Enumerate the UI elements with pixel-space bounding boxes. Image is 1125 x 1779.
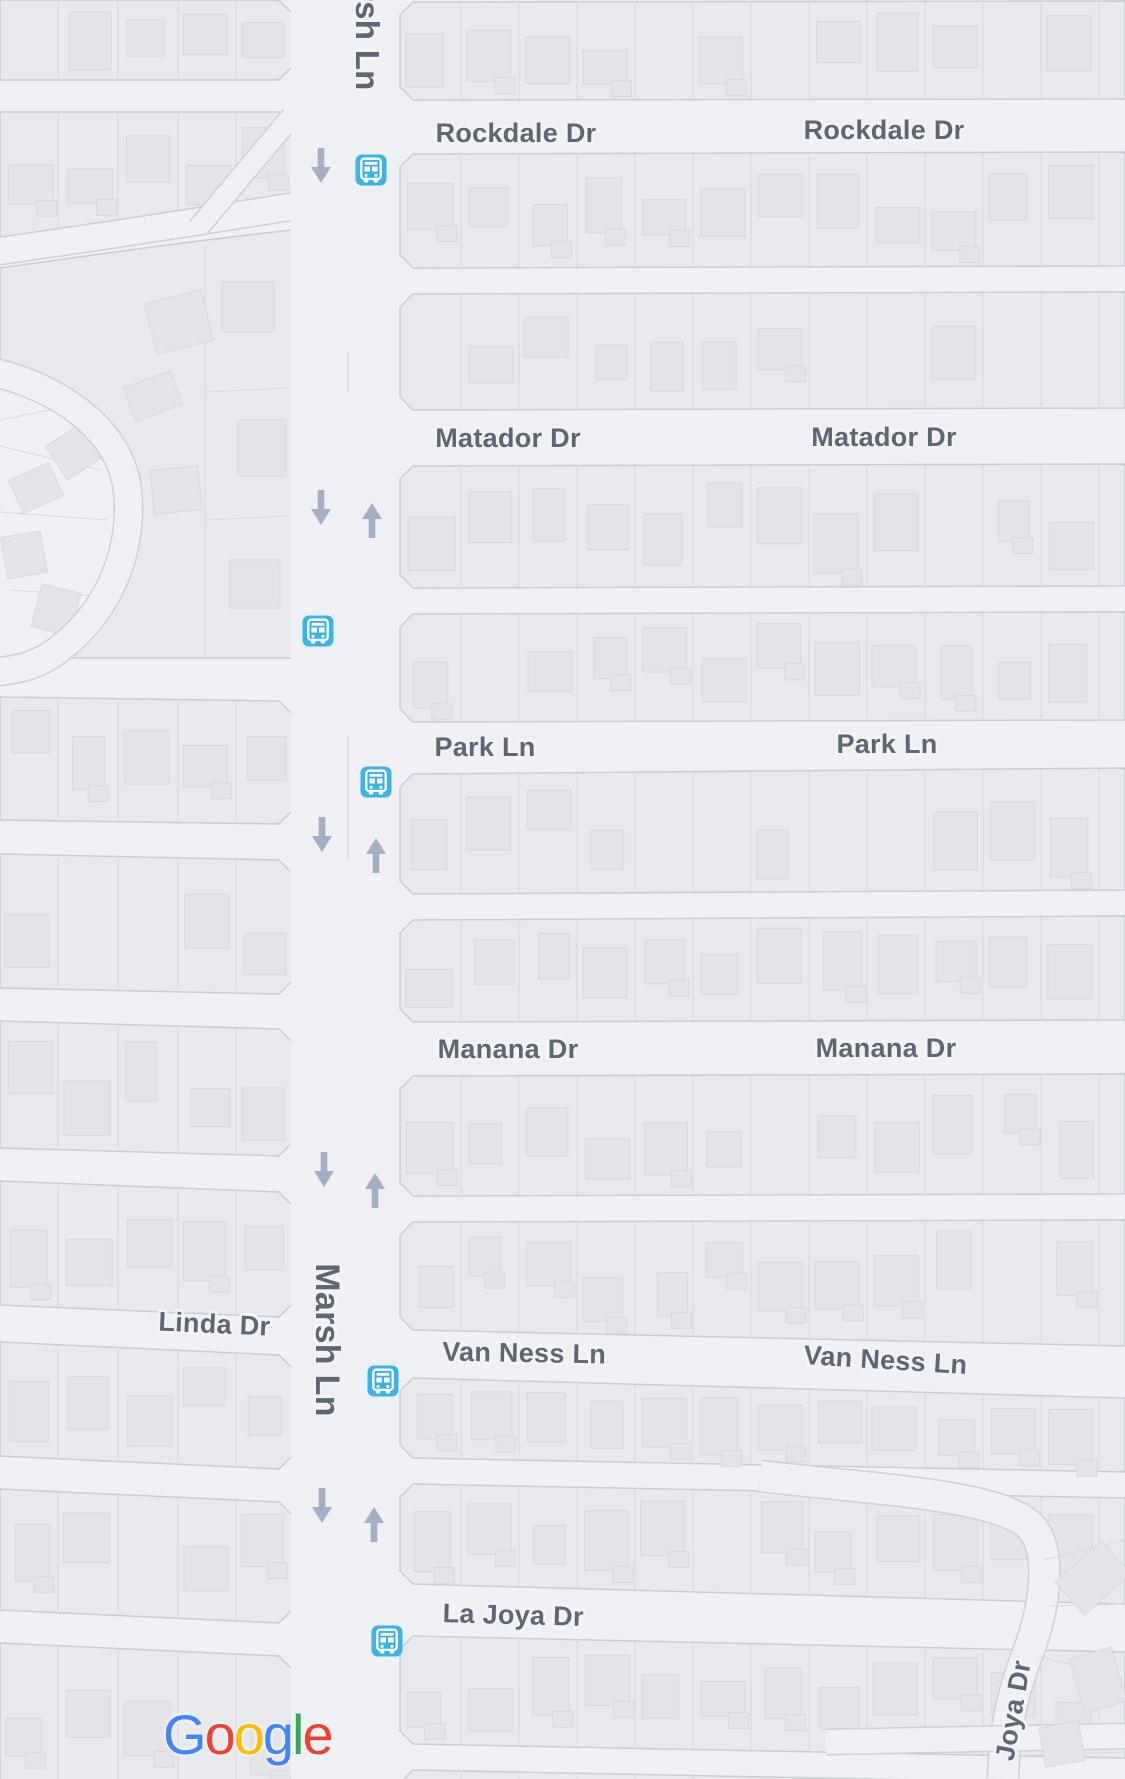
building-footprint — [670, 231, 690, 247]
building-footprint — [539, 934, 570, 979]
building-footprint — [585, 1511, 629, 1571]
building-footprint — [527, 1243, 571, 1286]
building-footprint — [873, 1663, 917, 1715]
building-footprint — [1049, 165, 1093, 218]
building-footprint — [268, 174, 288, 190]
building-footprint — [419, 1267, 453, 1308]
building-footprint — [786, 1714, 806, 1730]
building-footprint — [708, 483, 742, 527]
building-footprint — [527, 790, 571, 829]
building-footprint — [701, 954, 738, 994]
building-footprint — [814, 514, 858, 573]
building-footprint — [37, 200, 57, 216]
building-footprint — [128, 1396, 172, 1446]
building-footprint — [670, 1443, 690, 1459]
google-logo[interactable]: Google — [163, 1702, 332, 1767]
google-logo-letter: g — [263, 1702, 292, 1767]
building-footprint — [1048, 945, 1092, 999]
building-footprint — [611, 675, 631, 691]
building-footprint — [405, 34, 443, 87]
building-footprint — [469, 492, 512, 543]
building-footprint — [758, 1405, 802, 1450]
building-footprint — [245, 1226, 283, 1269]
building-footprint — [641, 1501, 685, 1555]
building-footprint — [818, 1116, 856, 1157]
building-footprint — [425, 1723, 445, 1739]
building-footprint — [875, 1122, 919, 1172]
building-footprint — [878, 935, 917, 994]
building-footprint — [1019, 1450, 1039, 1466]
building-footprint — [96, 200, 116, 216]
building-footprint — [555, 1281, 575, 1297]
building-footprint — [758, 1263, 802, 1312]
building-footprint — [1005, 1095, 1036, 1133]
building-footprint — [1051, 819, 1088, 877]
street-label-marsh-ln: Marsh Ln — [308, 1263, 346, 1417]
building-footprint — [67, 1691, 110, 1738]
building-footprint — [961, 1695, 981, 1711]
building-footprint — [407, 1692, 441, 1727]
building-footprint — [222, 282, 274, 332]
building-footprint — [586, 1139, 630, 1179]
building-footprint — [757, 623, 801, 667]
building-footprint — [817, 21, 861, 62]
building-footprint — [534, 1526, 565, 1565]
bus-stop-icon[interactable] — [356, 155, 387, 186]
building-footprint — [524, 317, 568, 357]
building-footprint — [1077, 1461, 1097, 1477]
building-footprint — [248, 1397, 281, 1436]
building-footprint — [729, 1713, 749, 1729]
street-label-linda-dr: Linda Dr — [158, 1307, 271, 1342]
building-footprint — [876, 208, 920, 243]
building-footprint — [937, 1231, 972, 1289]
building-footprint — [877, 13, 918, 72]
building-footprint — [702, 659, 746, 701]
building-footprint — [596, 345, 627, 379]
building-footprint — [962, 1566, 982, 1582]
building-footprint — [644, 514, 682, 565]
building-footprint — [989, 174, 1027, 221]
building-footprint — [701, 1681, 745, 1716]
building-footprint — [874, 1255, 918, 1306]
google-logo-letter: e — [302, 1702, 331, 1767]
building-footprint — [606, 229, 626, 245]
building-footprint — [127, 1219, 171, 1267]
building-footprint — [68, 169, 113, 204]
google-logo-letter: l — [292, 1702, 302, 1767]
building-footprint — [815, 642, 859, 695]
building-footprint — [467, 30, 511, 81]
building-footprint — [786, 1307, 806, 1323]
building-footprint — [405, 969, 452, 1007]
map-canvas[interactable]: rsh LnRockdale DrRockdale DrMatador DrMa… — [0, 0, 1125, 1779]
building-footprint — [124, 731, 169, 784]
building-footprint — [551, 242, 571, 258]
building-footprint — [1020, 1129, 1040, 1145]
building-footprint — [1077, 1291, 1097, 1307]
building-footprint — [485, 1272, 505, 1288]
building-footprint — [726, 80, 746, 96]
building-footprint — [1013, 538, 1033, 554]
bus-stop-icon[interactable] — [303, 616, 334, 647]
building-footprint — [612, 81, 632, 97]
building-footprint — [644, 940, 684, 984]
building-footprint — [669, 980, 689, 996]
building-footprint — [591, 830, 624, 869]
building-footprint — [31, 1284, 51, 1300]
building-footprint — [757, 830, 788, 879]
building-footprint — [469, 187, 508, 226]
street-label-van-ness-ln-west: Van Ness Ln — [442, 1337, 606, 1370]
building-footprint — [9, 1041, 53, 1093]
building-footprint — [418, 1395, 453, 1439]
building-footprint — [191, 1089, 230, 1127]
building-footprint — [5, 915, 49, 968]
building-footprint — [642, 1675, 678, 1718]
building-footprint — [594, 638, 627, 679]
building-footprint — [765, 1668, 802, 1719]
building-footprint — [244, 933, 286, 974]
building-footprint — [990, 802, 1034, 860]
building-footprint — [902, 1302, 922, 1318]
building-footprint — [991, 1409, 1035, 1454]
building-footprint — [267, 1563, 287, 1579]
building-footprint — [412, 820, 447, 870]
building-footprint — [586, 1655, 630, 1706]
building-footprint — [9, 165, 53, 205]
building-footprint — [527, 1392, 565, 1442]
building-footprint — [468, 1237, 500, 1276]
building-footprint — [184, 745, 228, 786]
street-label-manana-dr-west: Manana Dr — [438, 1034, 579, 1064]
building-footprint — [528, 652, 572, 692]
street-label-rockdale-dr-west: Rockdale Dr — [436, 118, 597, 148]
building-footprint — [1049, 644, 1087, 702]
street-label-marsh-ln-top: rsh Ln — [349, 0, 386, 91]
building-footprint — [270, 1771, 290, 1779]
building-footprint — [64, 1081, 110, 1135]
building-footprint — [183, 1222, 226, 1281]
building-footprint — [761, 1502, 802, 1553]
road-marsh-ln[interactable] — [291, 0, 399, 1779]
street-label-matador-dr-east: Matador Dr — [811, 422, 957, 452]
building-footprint — [787, 1549, 807, 1565]
street-label-manana-dr-east: Manana Dr — [816, 1033, 957, 1063]
building-footprint — [211, 783, 231, 799]
building-footprint — [468, 1688, 512, 1731]
building-footprint — [584, 50, 628, 84]
building-footprint — [241, 1515, 283, 1567]
city-block — [400, 1074, 1125, 1196]
building-footprint — [998, 501, 1029, 542]
building-footprint — [408, 517, 455, 571]
building-footprint — [643, 199, 686, 234]
building-footprint — [786, 1446, 806, 1462]
building-footprint — [583, 947, 627, 997]
building-footprint — [990, 937, 1027, 987]
building-footprint — [533, 205, 567, 246]
building-footprint — [701, 189, 745, 237]
building-footprint — [932, 212, 976, 251]
bus-stop-icon[interactable] — [368, 1366, 399, 1397]
building-footprint — [651, 342, 683, 391]
building-footprint — [900, 683, 920, 699]
building-footprint — [842, 569, 862, 585]
building-footprint — [934, 812, 978, 870]
building-footprint — [526, 37, 570, 84]
building-footprint — [960, 247, 980, 263]
building-footprint — [230, 560, 280, 608]
building-footprint — [185, 894, 229, 948]
building-footprint — [437, 226, 457, 242]
building-footprint — [702, 342, 736, 389]
building-footprint — [1047, 16, 1091, 71]
building-footprint — [816, 1532, 851, 1573]
building-footprint — [495, 77, 515, 93]
building-footprint — [469, 1123, 502, 1163]
building-footprint — [644, 1123, 687, 1175]
building-footprint — [553, 1711, 573, 1727]
building-footprint — [495, 1550, 515, 1566]
building-footprint — [874, 494, 918, 550]
building-footprint — [758, 175, 802, 217]
building-footprint — [586, 178, 622, 233]
building-footprint — [533, 1658, 569, 1716]
bus-stop-icon[interactable] — [361, 767, 392, 798]
building-footprint — [956, 695, 976, 711]
building-footprint — [583, 1278, 622, 1321]
building-footprint — [1072, 873, 1092, 889]
building-footprint — [72, 736, 104, 789]
building-footprint — [434, 1568, 454, 1584]
google-logo-letter: G — [163, 1702, 205, 1767]
building-footprint — [467, 1504, 511, 1554]
street-label-rockdale-dr-east: Rockdale Dr — [804, 115, 965, 145]
building-footprint — [12, 710, 50, 753]
building-footprint — [936, 941, 976, 981]
map-frame: rsh LnRockdale DrRockdale DrMatador DrMa… — [0, 0, 1125, 1779]
building-footprint — [934, 1515, 978, 1571]
building-footprint — [960, 977, 980, 993]
building-footprint — [183, 1368, 225, 1405]
building-footprint — [472, 1392, 512, 1440]
building-footprint — [1039, 1721, 1085, 1767]
building-footprint — [15, 1524, 50, 1580]
building-footprint — [64, 1513, 110, 1562]
bus-stop-icon[interactable] — [372, 1626, 403, 1657]
google-logo-letter: o — [234, 1702, 263, 1767]
building-footprint — [643, 627, 687, 672]
building-footprint — [959, 1452, 979, 1468]
building-footprint — [835, 1569, 855, 1585]
building-footprint — [534, 489, 565, 541]
building-footprint — [70, 12, 112, 70]
building-footprint — [819, 1401, 862, 1443]
building-footprint — [933, 1658, 977, 1699]
google-logo-letter: o — [205, 1702, 234, 1767]
building-footprint — [872, 645, 916, 686]
building-footprint — [591, 1401, 623, 1448]
building-footprint — [1050, 523, 1094, 570]
building-footprint — [706, 1243, 742, 1277]
building-footprint — [526, 1107, 568, 1156]
building-footprint — [432, 704, 452, 720]
building-footprint — [824, 932, 862, 990]
building-footprint — [184, 1547, 228, 1591]
building-footprint — [613, 1567, 633, 1583]
building-footprint — [1, 531, 48, 579]
building-footprint — [414, 1512, 450, 1572]
building-footprint — [437, 1170, 457, 1186]
building-footprint — [657, 1272, 687, 1316]
street-label-la-joya-dr: La Joya Dr — [442, 1598, 584, 1632]
building-footprint — [727, 1273, 747, 1289]
building-footprint — [707, 1132, 741, 1167]
building-footprint — [1049, 1410, 1093, 1465]
building-footprint — [843, 1305, 863, 1321]
building-footprint — [757, 928, 801, 983]
building-footprint — [242, 1088, 284, 1141]
street-label-matador-dr-west: Matador Dr — [435, 423, 581, 453]
building-footprint — [126, 1042, 157, 1101]
building-footprint — [939, 1420, 975, 1456]
building-footprint — [496, 1436, 516, 1452]
building-footprint — [815, 1261, 859, 1309]
building-footprint — [10, 1230, 47, 1287]
building-footprint — [68, 1377, 108, 1430]
building-footprint — [614, 1702, 634, 1718]
building-footprint — [469, 347, 513, 383]
building-footprint — [999, 662, 1031, 699]
building-footprint — [846, 986, 866, 1002]
building-footprint — [817, 174, 858, 228]
building-footprint — [183, 14, 227, 54]
building-footprint — [10, 1382, 49, 1442]
building-footprint — [25, 1752, 45, 1768]
building-footprint — [475, 940, 515, 985]
building-footprint — [672, 1312, 692, 1328]
building-footprint — [606, 1317, 626, 1333]
building-footprint — [700, 1398, 737, 1455]
building-footprint — [406, 1123, 453, 1174]
building-footprint — [210, 1277, 230, 1293]
building-footprint — [932, 326, 976, 379]
building-footprint — [933, 1096, 973, 1155]
building-footprint — [588, 505, 629, 550]
building-footprint — [699, 37, 742, 84]
building-footprint — [247, 737, 286, 781]
building-footprint — [127, 136, 170, 182]
building-footprint — [877, 1515, 920, 1561]
building-footprint — [758, 488, 802, 544]
building-footprint — [722, 1451, 742, 1467]
building-footprint — [34, 1577, 54, 1593]
building-footprint — [407, 183, 453, 229]
building-footprint — [758, 329, 802, 370]
building-footprint — [437, 1435, 457, 1451]
building-footprint — [672, 1171, 692, 1187]
building-footprint — [414, 662, 448, 708]
building-footprint — [6, 1719, 42, 1756]
street-label-park-ln-west: Park Ln — [434, 732, 535, 762]
building-footprint — [467, 797, 511, 850]
building-footprint — [1060, 1122, 1093, 1179]
building-footprint — [671, 668, 691, 684]
building-footprint — [669, 1552, 689, 1568]
building-footprint — [642, 1398, 686, 1447]
building-footprint — [88, 786, 108, 802]
building-footprint — [238, 420, 286, 476]
building-footprint — [66, 1239, 112, 1285]
street-label-park-ln-east: Park Ln — [836, 729, 937, 759]
building-footprint — [820, 1688, 860, 1731]
building-footprint — [941, 646, 972, 700]
building-footprint — [1057, 1242, 1093, 1296]
building-footprint — [242, 23, 284, 58]
building-footprint — [786, 366, 806, 382]
building-footprint — [127, 20, 164, 56]
building-footprint — [933, 26, 977, 67]
building-footprint — [150, 466, 202, 515]
building-footprint — [872, 1407, 916, 1450]
building-footprint — [785, 664, 805, 680]
